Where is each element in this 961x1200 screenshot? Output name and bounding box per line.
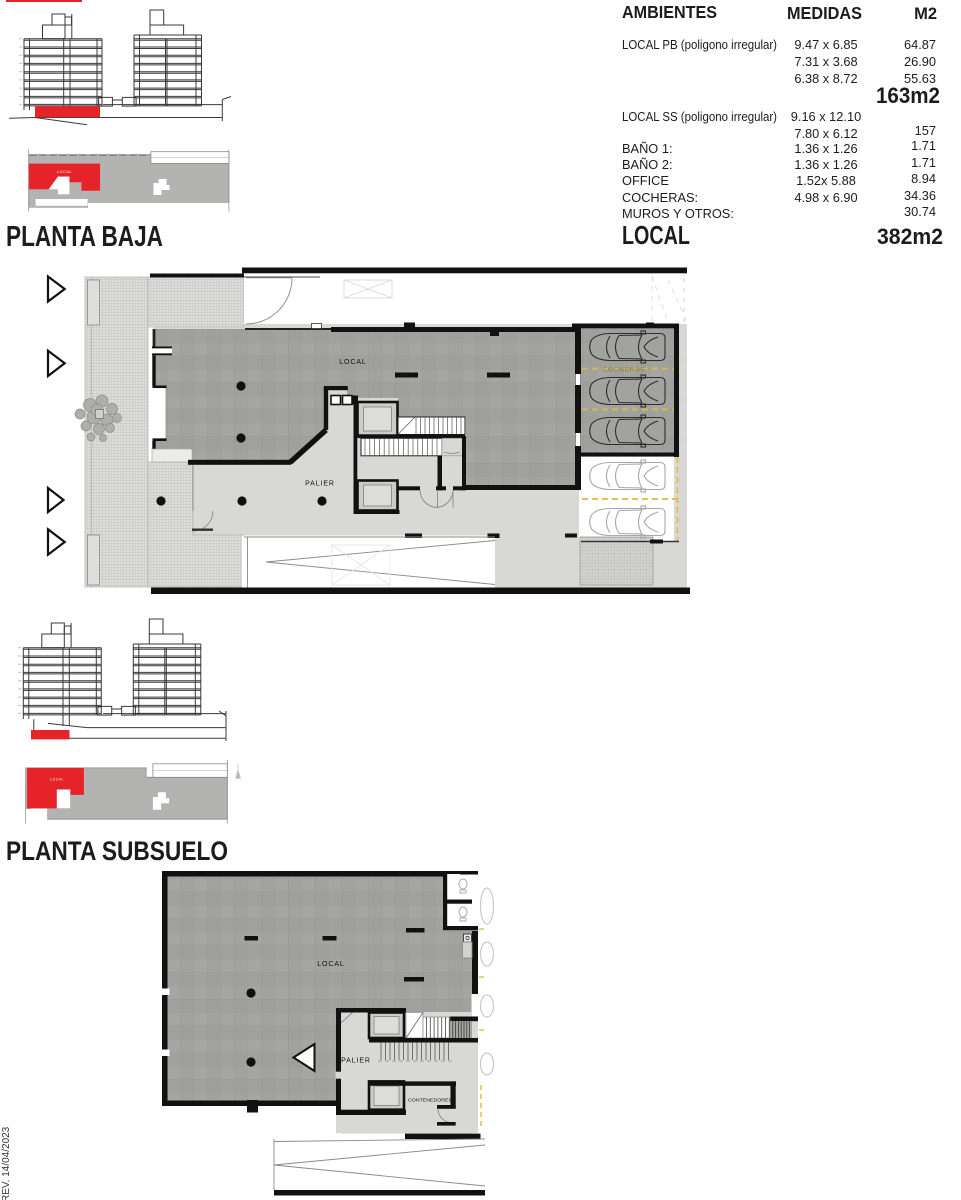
svg-text:1.52x 5.88: 1.52x 5.88 (796, 173, 856, 188)
svg-text:MEDIDAS: MEDIDAS (787, 3, 862, 23)
svg-text:1.71: 1.71 (911, 138, 936, 153)
svg-text:1.36 x 1.26: 1.36 x 1.26 (794, 157, 857, 172)
svg-text:MUROS Y OTROS:: MUROS Y OTROS: (622, 206, 734, 221)
svg-text:COCHERAS:: COCHERAS: (622, 190, 698, 205)
svg-text:AMBIENTES: AMBIENTES (622, 2, 717, 22)
svg-text:30.74: 30.74 (904, 204, 936, 219)
svg-text:LOCAL: LOCAL (317, 961, 344, 968)
svg-text:382m2: 382m2 (877, 224, 943, 249)
svg-text:LOCAL: LOCAL (622, 220, 690, 250)
svg-text:1.36 x 1.26: 1.36 x 1.26 (794, 141, 857, 156)
svg-text:PALIER: PALIER (341, 1058, 371, 1065)
svg-text:BAÑO 2:: BAÑO 2: (622, 157, 673, 172)
svg-text:64.87: 64.87 (904, 37, 936, 52)
svg-text:BAÑO 1:: BAÑO 1: (622, 141, 673, 156)
svg-text:7.31 x 3.68: 7.31 x 3.68 (794, 54, 857, 69)
svg-text:LOCAL PB (poligono irregular): LOCAL PB (poligono irregular) (622, 37, 777, 52)
svg-text:34.36: 34.36 (904, 188, 936, 203)
svg-text:9.16 x 12.10: 9.16 x 12.10 (791, 109, 861, 124)
svg-text:6.38 x 8.72: 6.38 x 8.72 (794, 71, 857, 86)
svg-text:OFFICE: OFFICE (622, 173, 669, 188)
svg-text:PLANTA SUBSUELO: PLANTA SUBSUELO (6, 836, 228, 866)
svg-text:163m2: 163m2 (876, 83, 940, 108)
svg-text:CONTENEDORES: CONTENEDORES (408, 1097, 452, 1103)
svg-text:9.47 x 6.85: 9.47 x 6.85 (794, 37, 857, 52)
svg-text:LOCAL: LOCAL (50, 778, 64, 782)
svg-text:157: 157 (915, 123, 936, 138)
svg-text:COCHERAS: COCHERAS (603, 366, 646, 373)
svg-text:LOCAL: LOCAL (339, 359, 366, 366)
svg-text:8.94: 8.94 (911, 171, 936, 186)
svg-text:LOCAL: LOCAL (57, 169, 72, 174)
svg-text:REV. 14/04/2023: REV. 14/04/2023 (1, 1126, 12, 1200)
svg-text:M2: M2 (914, 5, 937, 23)
svg-text:PALIER: PALIER (305, 481, 335, 488)
svg-text:4.98 x 6.90: 4.98 x 6.90 (794, 190, 857, 205)
svg-text:LOCAL SS (poligono irregular): LOCAL SS (poligono irregular) (622, 109, 777, 124)
svg-text:26.90: 26.90 (904, 54, 936, 69)
svg-text:1.71: 1.71 (911, 155, 936, 170)
svg-text:PLANTA BAJA: PLANTA BAJA (6, 221, 163, 253)
svg-text:7.80 x 6.12: 7.80 x 6.12 (794, 126, 857, 141)
